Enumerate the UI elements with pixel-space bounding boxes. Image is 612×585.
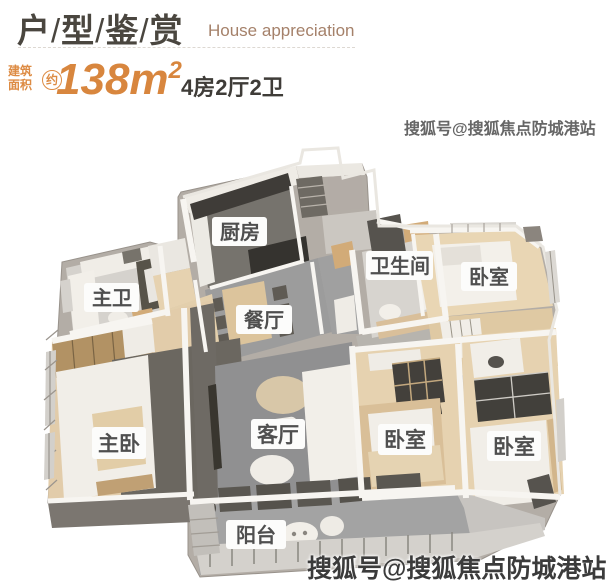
svg-text:客厅: 客厅	[257, 423, 299, 447]
svg-text:阳台: 阳台	[236, 523, 276, 547]
svg-text:主卧: 主卧	[98, 433, 140, 456]
svg-text:卧室: 卧室	[384, 428, 426, 452]
svg-text:主卫: 主卫	[92, 286, 132, 310]
svg-text:卧室: 卧室	[493, 435, 535, 459]
svg-text:卧室: 卧室	[469, 265, 509, 289]
svg-text:厨房: 厨房	[220, 220, 260, 244]
svg-text:卫生间: 卫生间	[370, 255, 430, 278]
svg-text:餐厅: 餐厅	[244, 308, 284, 332]
